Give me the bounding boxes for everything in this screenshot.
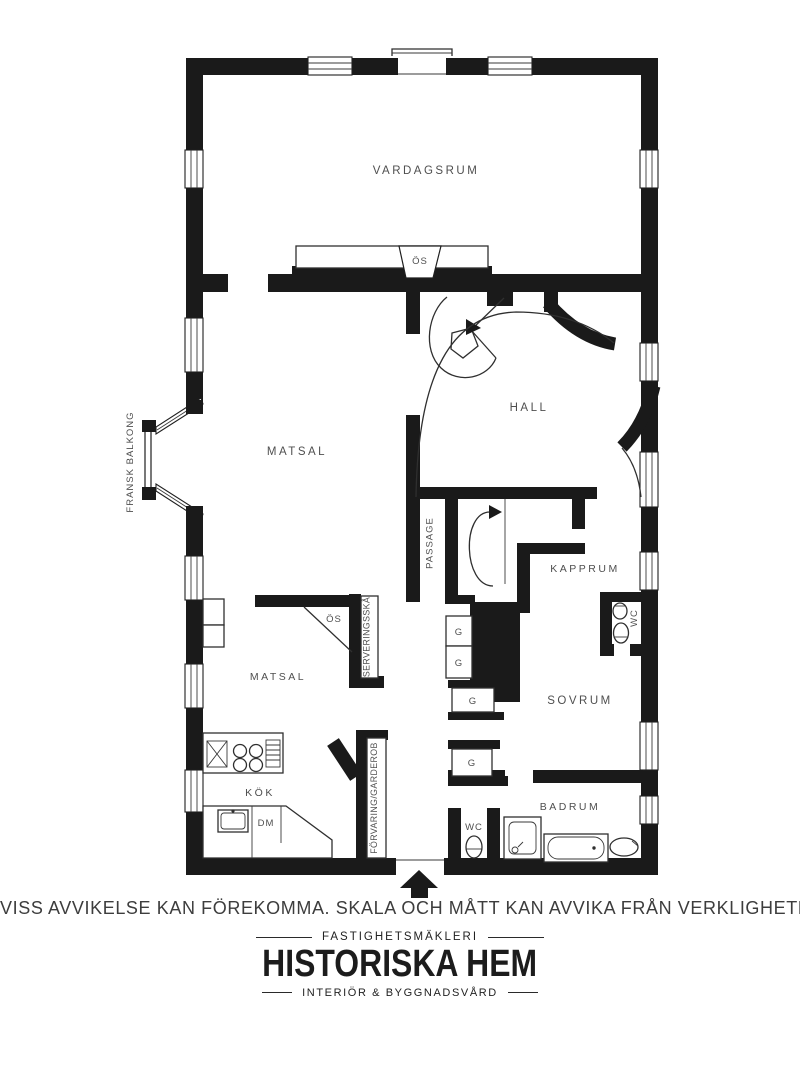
label-g4: G xyxy=(468,758,476,769)
label-os-corner: ÖS xyxy=(326,614,342,625)
room-label-vardagsrum: VARDAGSRUM xyxy=(373,165,480,177)
label-wc-upper: WC xyxy=(629,609,640,627)
room-label-matsal-upper: MATSAL xyxy=(267,446,327,458)
room-label-hall: HALL xyxy=(510,402,549,414)
label-g1: G xyxy=(455,627,463,638)
spiral-staircase xyxy=(429,297,504,378)
window xyxy=(640,796,658,824)
divider-line xyxy=(508,992,538,993)
window xyxy=(308,57,352,75)
window xyxy=(488,57,532,75)
window xyxy=(640,552,658,590)
fireplace-vardagsrum: ÖS xyxy=(292,246,492,292)
page: { "colors": { "wall": "#1a1a1a", "label"… xyxy=(0,0,800,1066)
room-label-matsal-lower: MATSAL xyxy=(250,671,306,683)
room-label-badrum: BADRUM xyxy=(540,801,601,813)
divider-line xyxy=(262,992,292,993)
window xyxy=(640,150,658,188)
floorplan-drawing: FRANSK BALKONG xyxy=(0,0,800,910)
label-g2: G xyxy=(455,658,463,669)
brand-tagline: INTERIÖR & BYGGNADSVÅRD xyxy=(302,987,498,999)
disclaimer-text: VISS AVVIKELSE KAN FÖREKOMMA. SKALA OCH … xyxy=(0,898,800,919)
label-fransk-balkong: FRANSK BALKONG xyxy=(125,411,136,512)
room-label-passage: PASSAGE xyxy=(425,517,436,569)
label-forvaring-garderob: FÖRVARING/GARDEROB xyxy=(369,742,379,853)
window xyxy=(640,343,658,381)
direction-arrow xyxy=(489,505,502,519)
brand-name: HISTORISKA HEM xyxy=(263,945,538,985)
window xyxy=(185,318,203,372)
label-wc-lower: WC xyxy=(465,822,483,833)
room-label-kok: KÖK xyxy=(245,787,275,799)
label-os-fireplace: ÖS xyxy=(412,256,428,267)
window xyxy=(640,722,658,770)
label-g3: G xyxy=(469,696,477,707)
window xyxy=(640,452,658,507)
inner-stair-arrow xyxy=(469,499,505,586)
brand-block: FASTIGHETSMÄKLERI HISTORISKA HEM INTERIÖ… xyxy=(0,931,800,999)
brand-tagline-row: INTERIÖR & BYGGNADSVÅRD xyxy=(0,987,800,999)
window xyxy=(185,556,203,600)
divider-line xyxy=(256,937,312,938)
label-dm: DM xyxy=(258,818,275,829)
brand-kicker: FASTIGHETSMÄKLERI xyxy=(322,931,478,943)
upper-wc-fixtures: WC xyxy=(613,603,640,643)
window xyxy=(185,664,203,708)
divider-line xyxy=(488,937,544,938)
brand-kicker-row: FASTIGHETSMÄKLERI xyxy=(0,931,800,943)
room-label-sovrum: SOVRUM xyxy=(547,695,612,707)
footer: VISS AVVIKELSE KAN FÖREKOMMA. SKALA OCH … xyxy=(0,898,800,999)
window xyxy=(185,770,203,812)
room-label-kapprum: KAPPRUM xyxy=(550,563,619,575)
label-serveringsskap: SERVERINGSSKÅ xyxy=(362,597,372,677)
window xyxy=(185,150,203,188)
